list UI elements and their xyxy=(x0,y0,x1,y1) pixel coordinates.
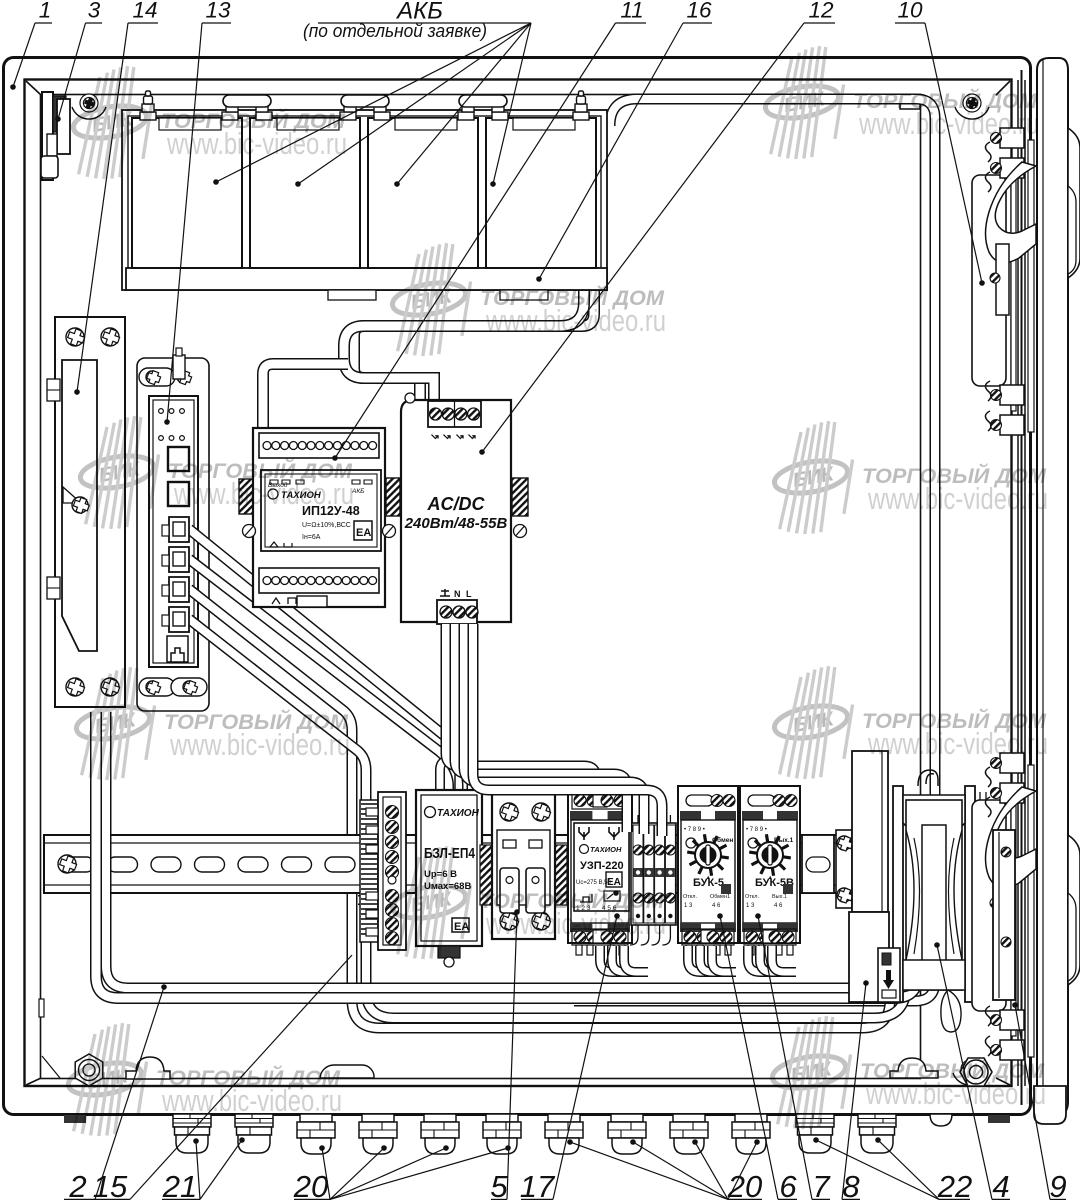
svg-text:www.bic-video.ru: www.bic-video.ru xyxy=(485,906,666,941)
svg-text:www.bic-video.ru: www.bic-video.ru xyxy=(867,481,1048,516)
svg-text:www.bic-video.ru: www.bic-video.ru xyxy=(173,476,354,511)
svg-text:www.bic-video.ru: www.bic-video.ru xyxy=(161,1083,342,1118)
svg-text:www.bic-video.ru: www.bic-video.ru xyxy=(166,126,347,161)
svg-text:www.bic-video.ru: www.bic-video.ru xyxy=(865,1076,1046,1111)
svg-text:www.bic-video.ru: www.bic-video.ru xyxy=(867,726,1048,761)
svg-text:www.bic-video.ru: www.bic-video.ru xyxy=(858,106,1039,141)
svg-text:www.bic-video.ru: www.bic-video.ru xyxy=(169,727,350,762)
svg-text:www.bic-video.ru: www.bic-video.ru xyxy=(485,303,666,338)
